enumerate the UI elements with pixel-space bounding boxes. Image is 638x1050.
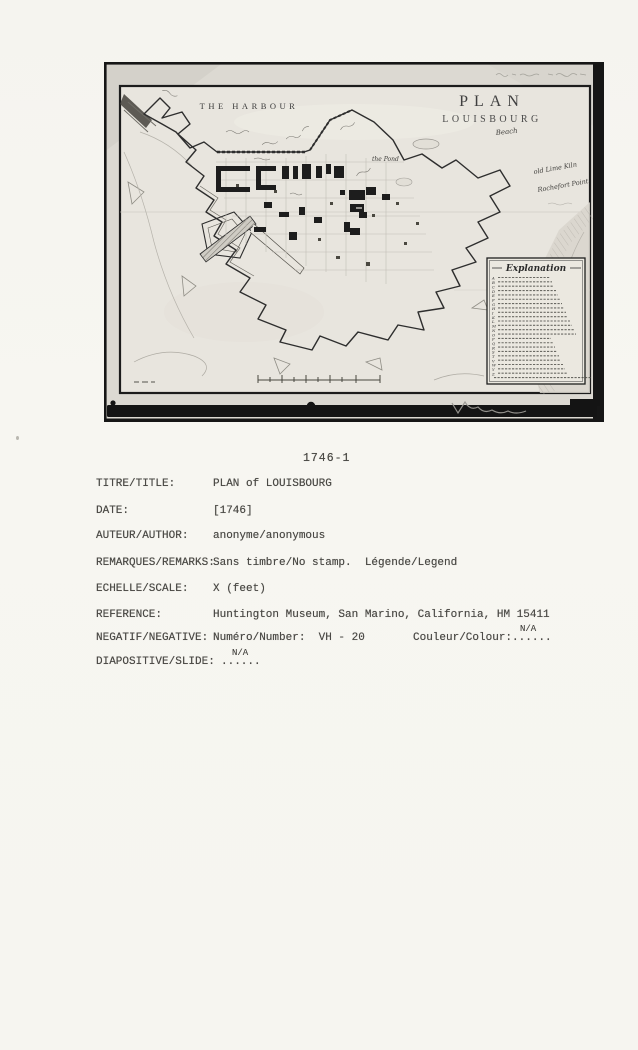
date-value: [1746] bbox=[213, 505, 253, 517]
remarks-value: Sans timbre/No stamp. Légende/Legend bbox=[213, 557, 457, 569]
scale-value: X (feet) bbox=[213, 583, 266, 595]
author-label: AUTEUR/AUTHOR: bbox=[96, 530, 188, 542]
title-label: TITRE/TITLE: bbox=[96, 478, 175, 490]
catalog-row-reference: REFERENCE: Huntington Museum, San Marino… bbox=[96, 609, 616, 625]
remarks-label: REMARQUES/REMARKS: bbox=[96, 557, 215, 569]
date-label: DATE: bbox=[96, 505, 129, 517]
paper-speck bbox=[16, 436, 19, 440]
colour-na: N/A bbox=[520, 624, 536, 634]
negative-number-value: Numéro/Number: VH - 20 bbox=[213, 632, 365, 644]
catalog-row-title: TITRE/TITLE: PLAN of LOUISBOURG bbox=[96, 478, 616, 494]
reference-label: REFERENCE: bbox=[96, 609, 162, 621]
catalog-row-remarks: REMARQUES/REMARKS: Sans timbre/No stamp.… bbox=[96, 557, 616, 573]
slide-na: N/A bbox=[232, 648, 248, 658]
negative-label: NEGATIF/NEGATIVE: bbox=[96, 632, 208, 644]
catalog-row-slide: DIAPOSITIVE/SLIDE: ...... N/A bbox=[96, 656, 616, 672]
catalog-row-author: AUTEUR/AUTHOR: anonyme/anonymous bbox=[96, 530, 616, 546]
title-value: PLAN of LOUISBOURG bbox=[213, 478, 332, 490]
catalog-row-date: DATE: [1746] bbox=[96, 505, 616, 521]
slide-label: DIAPOSITIVE/SLIDE: bbox=[96, 656, 215, 668]
catalog-row-negative: NEGATIF/NEGATIVE: Numéro/Number: VH - 20… bbox=[96, 632, 616, 648]
catalog-row-scale: ECHELLE/SCALE: X (feet) bbox=[96, 583, 616, 599]
catalog-card-page: THE HARBOUR PLAN LOUISBOURG bbox=[0, 0, 638, 1050]
catalog-text-block: 1746-1 TITRE/TITLE: PLAN of LOUISBOURG D… bbox=[0, 0, 638, 1050]
author-value: anonyme/anonymous bbox=[213, 530, 325, 542]
reference-value: Huntington Museum, San Marino, Californi… bbox=[213, 609, 550, 621]
scale-label: ECHELLE/SCALE: bbox=[96, 583, 188, 595]
catalog-number: 1746-1 bbox=[303, 452, 350, 465]
